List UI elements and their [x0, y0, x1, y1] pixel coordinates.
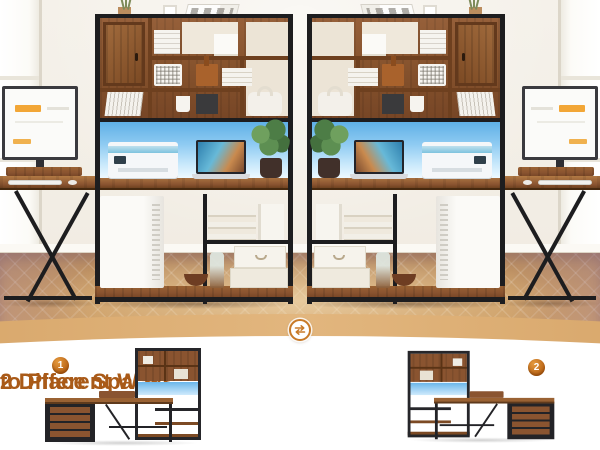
monitor-ui-element [15, 121, 63, 123]
door-knob [462, 53, 465, 61]
mini-drawer-cabinet [45, 404, 95, 442]
keyboard [8, 180, 62, 185]
frame-post [288, 14, 293, 304]
layout-option-1-thumbnail: 1 [40, 346, 206, 446]
hutch-divider [240, 56, 244, 118]
desk-plant [248, 116, 290, 162]
box-handle [255, 255, 267, 260]
hutch-divider [448, 18, 452, 118]
hutch-shelf [312, 56, 450, 60]
paper-stack [362, 34, 386, 54]
layout-option-2-thumbnail: 2 [398, 346, 564, 446]
pc-tower [436, 196, 500, 288]
retro-radio [418, 64, 446, 86]
speaker-handle [257, 86, 273, 96]
mini-desk-brace [474, 403, 498, 437]
monitor-riser [6, 167, 82, 176]
caddy-handle [204, 56, 209, 66]
laptop-screen [356, 142, 402, 172]
mini-drawers [512, 406, 550, 436]
hutch-divider [356, 56, 360, 118]
frame-post [307, 14, 312, 304]
monitor-ui-element [569, 139, 587, 144]
frame-top-bar [307, 14, 505, 18]
storage-box [314, 246, 366, 268]
hutch-cabinet-door [103, 22, 145, 86]
book-stack [348, 68, 378, 86]
mug [410, 96, 424, 112]
desk-setup-orientation-1 [0, 0, 300, 360]
desk-setup-orientation-2 [300, 0, 600, 360]
vinyl-records [105, 92, 144, 116]
laptop [354, 140, 404, 174]
tall-book [316, 204, 342, 240]
printer-panel [114, 156, 126, 164]
mini-under-shelf [109, 426, 167, 428]
desk-leg [26, 192, 90, 302]
option-2-badge: 2 [528, 359, 545, 376]
storage-box [312, 268, 370, 288]
hutch-shelf [150, 56, 288, 60]
wood-caddy [382, 64, 404, 86]
glass-bottle [376, 252, 390, 288]
storage-box [154, 30, 180, 54]
hutch-divider [148, 18, 152, 118]
option-1-badge: 1 [52, 357, 69, 374]
frame-top-bar [95, 14, 293, 18]
floor-shadow [0, 299, 100, 308]
desk-plant-pot [318, 158, 340, 178]
printer-lid [108, 146, 178, 153]
laptop [196, 140, 246, 174]
bottom-frame-bar [95, 297, 293, 302]
paper-stack [214, 34, 238, 54]
dark-box [382, 94, 404, 114]
book-stack [222, 68, 252, 86]
desk-leg [511, 192, 575, 302]
desk-leg [14, 190, 78, 300]
plant-twig [473, 0, 475, 8]
printer [108, 142, 178, 178]
floor-shadow [500, 299, 600, 308]
monitor [522, 86, 598, 160]
caddy-handle [391, 56, 396, 66]
printer-panel [474, 156, 486, 164]
pc-tower [100, 196, 164, 288]
door-knob [135, 53, 138, 61]
monitor-ui-element [531, 107, 553, 110]
monitor-ui-element [559, 105, 585, 112]
monitor [2, 86, 78, 160]
laptop-base [350, 174, 408, 179]
tall-book [258, 204, 284, 240]
speaker-handle [327, 86, 343, 96]
mouse [68, 180, 77, 185]
mini-desk-leg [435, 404, 438, 440]
storage-box [420, 30, 446, 54]
keyboard [538, 180, 592, 185]
mini-drawers [50, 407, 90, 439]
wood-caddy [196, 64, 218, 86]
storage-box [234, 246, 286, 268]
monitor-ui-element [537, 121, 585, 123]
lower-shelf-bar [203, 240, 293, 244]
vinyl-records [457, 92, 496, 116]
monitor-ui-element [15, 105, 41, 112]
mini-desk-brace [105, 404, 130, 440]
room-photo [0, 0, 600, 360]
glass-bottle [210, 252, 224, 288]
laptop-base [192, 174, 250, 179]
book-stack [344, 210, 392, 240]
swap-arrows-icon [289, 319, 311, 341]
lower-shelf-bar [307, 240, 397, 244]
mini-under-shelf [440, 424, 495, 426]
desk-plant-pot [260, 158, 282, 178]
retro-radio [154, 64, 182, 86]
monitor-ui-element [13, 139, 31, 144]
bottom-frame-bar [307, 297, 505, 302]
desk-plant [310, 116, 352, 162]
monitor-ui-element [47, 107, 69, 110]
mini-desk-leg [169, 404, 172, 442]
frame-post [500, 14, 505, 304]
mouse [523, 180, 532, 185]
storage-box [230, 268, 288, 288]
laptop-screen [198, 142, 244, 172]
product-image: 2 Different Ways to Place Space 1 [0, 0, 600, 450]
dark-box [196, 94, 218, 114]
mini-drawer-cabinet [507, 404, 554, 440]
hutch-cabinet-door [455, 22, 497, 86]
portable-speaker [248, 92, 282, 116]
mini-monitor-riser [99, 391, 135, 398]
box-handle [333, 255, 345, 260]
printer-tray [432, 168, 482, 172]
monitor-riser [518, 167, 594, 176]
mug [176, 96, 190, 112]
options-panel: 2 Different Ways to Place Space 1 [0, 336, 600, 450]
tower-vent [152, 204, 160, 280]
printer [422, 142, 492, 178]
tower-vent [440, 204, 448, 280]
desk-leg [522, 190, 586, 300]
portable-speaker [318, 92, 352, 116]
printer-lid [422, 146, 492, 153]
book-stack [208, 210, 256, 240]
printer-tray [118, 168, 168, 172]
